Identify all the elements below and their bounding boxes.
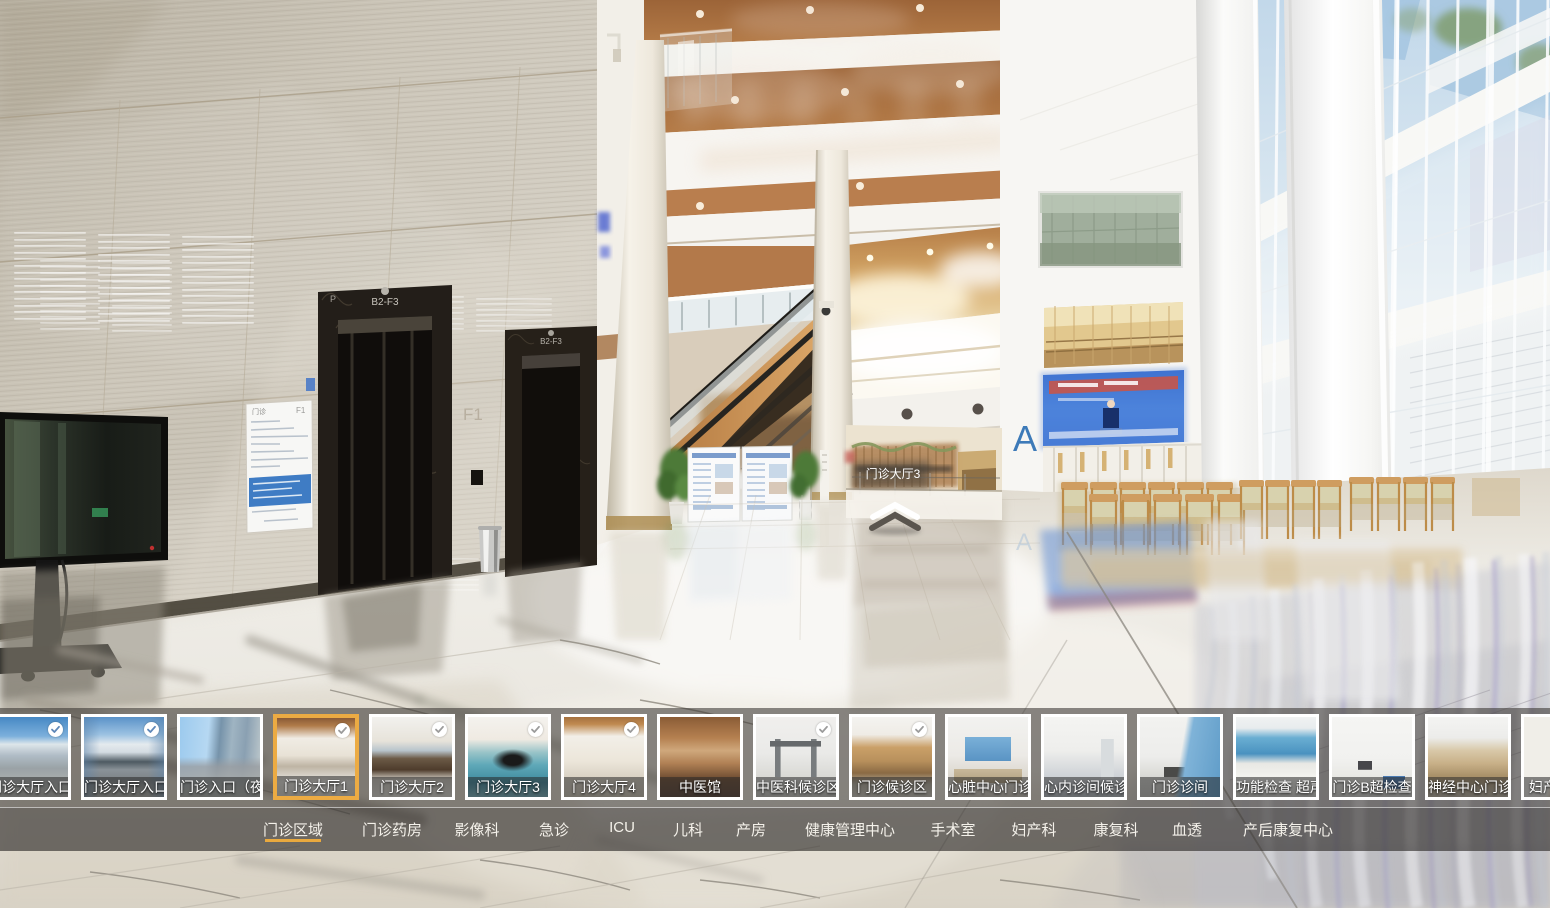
svg-text:门诊大厅3: 门诊大厅3	[866, 466, 921, 481]
svg-text:门诊: 门诊	[252, 407, 266, 416]
svg-text:A: A	[1013, 418, 1037, 459]
svg-text:A: A	[1016, 529, 1032, 556]
svg-text:B2-F3: B2-F3	[371, 297, 399, 308]
svg-text:B2-F3: B2-F3	[540, 337, 562, 346]
svg-text:P: P	[330, 294, 336, 304]
svg-text:F1: F1	[296, 406, 306, 415]
svg-text:F1: F1	[463, 405, 483, 424]
